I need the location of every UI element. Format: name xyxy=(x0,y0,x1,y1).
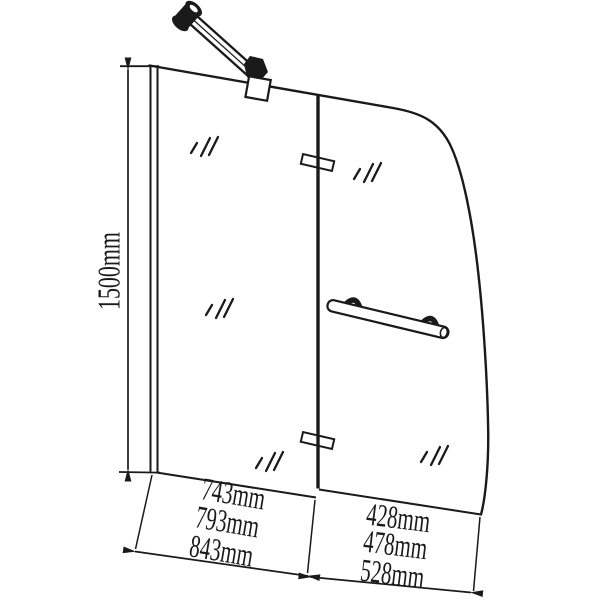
glass-panels xyxy=(150,66,489,515)
diagram-canvas: 1500mm xyxy=(0,0,600,600)
extension-line-mid xyxy=(308,500,316,573)
extension-line-right xyxy=(474,517,481,591)
towel-rail xyxy=(326,294,450,339)
reflection-mark xyxy=(256,452,283,471)
reflection-mark xyxy=(421,446,448,465)
bath-screen-technical-diagram: 1500mm xyxy=(0,0,600,600)
height-dimension-label: 1500mm xyxy=(90,232,126,310)
reflection-mark xyxy=(354,163,381,182)
reflection-mark xyxy=(191,137,218,156)
support-bar xyxy=(169,0,271,101)
support-bar-tube-edge2 xyxy=(190,24,253,81)
glass-clamp xyxy=(245,76,270,101)
right-width-label-overall: 528mm xyxy=(358,552,426,596)
left-width-dimension: 743mm 793mm 843mm xyxy=(135,470,315,576)
dimension-tick-bottom xyxy=(119,472,160,473)
reflection-mark xyxy=(206,299,233,318)
extension-line-left xyxy=(136,475,153,549)
